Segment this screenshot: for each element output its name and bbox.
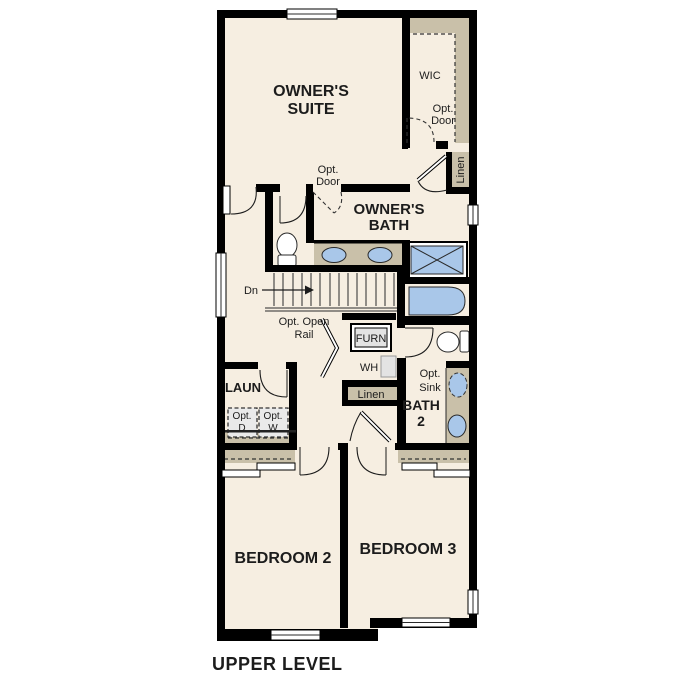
wall-segment (217, 443, 296, 450)
shower (407, 242, 467, 278)
opt-washer-label-line1: Opt. (264, 411, 283, 422)
bedroom3-closet-door-panel (402, 463, 437, 470)
floor-plan-page: OWNER'S SUITE WIC Opt. Door Linen Opt. D… (0, 0, 687, 687)
toilet-bowl (437, 332, 459, 352)
bath2-optional-sink (449, 373, 467, 397)
wall-segment (265, 184, 273, 272)
opt-washer-label-line2: W (268, 423, 278, 434)
wall-segment (265, 265, 403, 272)
bedroom3-closet-shelf (398, 450, 469, 463)
bedroom2-closet-door-panel (257, 463, 295, 470)
bath2-toilet (437, 331, 469, 352)
wic-opt-door-label-line1: Opt. (433, 103, 454, 115)
wall-segment (398, 316, 469, 325)
wall-segment (404, 277, 469, 284)
window-bedroom3-right (468, 590, 478, 614)
opt-sink-label-line2: Sink (419, 382, 441, 394)
bedroom3-label: BEDROOM 3 (360, 541, 457, 558)
suite-opt-door-label-line1: Opt. (318, 164, 339, 176)
wall-segment (217, 10, 477, 18)
bedroom3-closet-door-panel (434, 470, 470, 477)
counter-edge-line (314, 240, 403, 244)
wall-segment (469, 10, 477, 628)
plan-caption: UPPER LEVEL (212, 654, 343, 674)
stairs-dn-label: Dn (244, 285, 258, 297)
owners-bath-label-line2: BATH (369, 217, 410, 234)
opt-dryer-label-line2: D (238, 423, 245, 434)
wall-segment (341, 184, 410, 192)
opt-dryer-label-line1: Opt. (233, 411, 252, 422)
window-bedroom2-bottom (271, 630, 320, 640)
wic-shelf-right (455, 18, 469, 143)
bedroom2-closet-door-panel (222, 470, 260, 477)
owners-bath-label-line1: OWNER'S (353, 201, 424, 218)
bedroom2-label: BEDROOM 2 (235, 550, 332, 567)
toilet-tank (460, 331, 469, 352)
exterior-mask (378, 628, 482, 650)
wall-segment (342, 313, 396, 320)
wic-label: WIC (419, 70, 440, 82)
opt-open-rail-label-line1: Opt. Open (279, 316, 330, 328)
wall-segment (306, 184, 313, 192)
bathtub (409, 287, 465, 315)
wall-segment (342, 380, 348, 406)
furnace-label: FURN (356, 333, 387, 345)
window-owners-suite-top (287, 9, 337, 19)
wic-opt-door-label-line2: Door (431, 115, 455, 127)
window-left-wall (216, 253, 226, 317)
wall-segment (340, 447, 348, 628)
water-heater-label: WH (360, 362, 378, 374)
wall-segment (217, 10, 225, 641)
window-bedroom3-bottom (402, 618, 450, 627)
water-heater-unit (381, 356, 396, 377)
bath2-label-line1: BATH (402, 397, 440, 413)
wall-segment (402, 10, 410, 148)
owners-suite-label-line2: SUITE (287, 101, 334, 118)
owners-vanity-sink-left (322, 248, 346, 263)
linen-upper-label: Linen (455, 157, 467, 184)
window-right-wall-bath (468, 205, 478, 225)
toilet-bowl (277, 233, 297, 257)
wall-segment (289, 362, 297, 450)
floor-plan: OWNER'S SUITE WIC Opt. Door Linen Opt. D… (0, 0, 687, 687)
suite-opt-door-label-line2: Door (316, 176, 340, 188)
bedroom2-closet-shelf (221, 450, 295, 463)
wall-segment (446, 187, 469, 194)
laundry-label: LAUN (225, 380, 261, 395)
wall-segment (436, 141, 448, 149)
toilet-tank (278, 255, 296, 266)
owners-suite-label-line1: OWNER'S (273, 83, 349, 100)
linen-hall-label: Linen (358, 389, 385, 401)
bath2-sink (448, 415, 466, 437)
opt-open-rail-label-line2: Rail (295, 329, 314, 341)
counter-edge-line (225, 430, 296, 433)
wall-segment (395, 443, 470, 450)
opt-sink-label-line1: Opt. (420, 368, 441, 380)
wall-segment (342, 380, 397, 387)
wall-segment (446, 361, 469, 368)
owners-toilet (277, 233, 297, 266)
wall-segment (306, 192, 314, 243)
owners-vanity-sink-right (368, 248, 392, 263)
bath2-label-line2: 2 (417, 413, 425, 429)
wall-segment (217, 362, 258, 369)
